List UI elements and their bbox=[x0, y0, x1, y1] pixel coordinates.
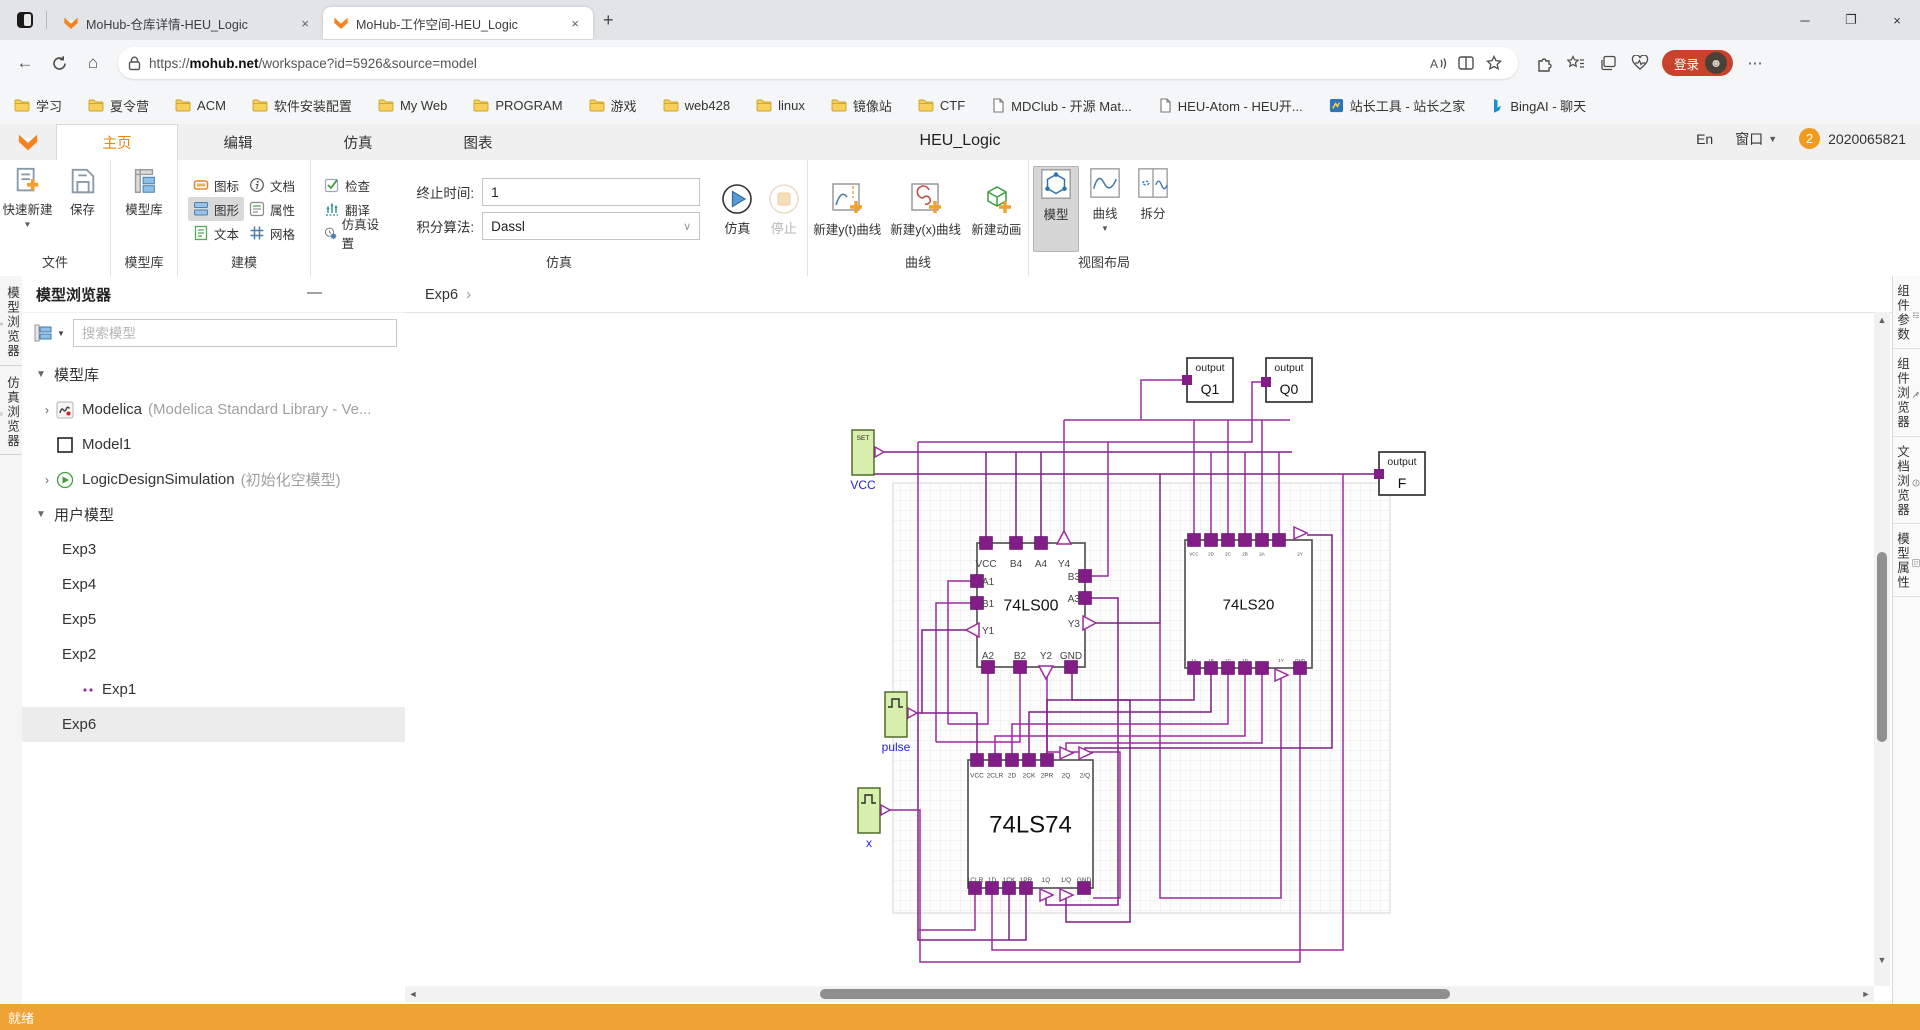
yt-curve-icon bbox=[829, 180, 865, 216]
scroll-left-icon[interactable]: ◄ bbox=[405, 989, 421, 999]
bookmark-item[interactable]: MDClub - 开源 Mat... bbox=[991, 96, 1132, 115]
home-icon[interactable]: ⌂ bbox=[76, 46, 110, 80]
toggle-attributes[interactable]: 属性 bbox=[244, 197, 300, 221]
bookmark-item[interactable]: 站长工具 - 站长之家 bbox=[1329, 96, 1466, 115]
tree-item-模型库[interactable]: ▼模型库 bbox=[22, 357, 405, 392]
svg-text:1PR: 1PR bbox=[1020, 877, 1033, 884]
tree-item-modelica[interactable]: ›Modelica(Modelica Standard Library - Ve… bbox=[22, 392, 405, 427]
status-text: 就绪 bbox=[8, 1008, 34, 1027]
yx-curve-icon bbox=[908, 180, 944, 216]
folder-icon bbox=[252, 98, 268, 112]
dock-tab-label: 文档浏览器 bbox=[1893, 445, 1912, 518]
ribbon-tab-edit[interactable]: 编辑 bbox=[178, 124, 298, 160]
tab-title: MoHub-仓库详情-HEU_Logic bbox=[86, 14, 297, 33]
right-dock-tab-2[interactable]: 组件浏览器 bbox=[1893, 349, 1920, 437]
model-view-icon bbox=[1039, 167, 1073, 201]
save-icon bbox=[68, 166, 98, 196]
svg-text:VCC: VCC bbox=[850, 478, 876, 492]
svg-text:B2: B2 bbox=[1014, 651, 1027, 662]
bookmark-label: 站长工具 - 站长之家 bbox=[1350, 96, 1466, 115]
ribbon-group-simulation: 检查 翻译 仿真设置 终止时间: 1 积分算法: bbox=[311, 160, 808, 276]
svg-text:F: F bbox=[1398, 475, 1407, 491]
back-icon[interactable]: ← bbox=[8, 46, 42, 80]
left-dock-tab-2[interactable]: 仿真浏览器 bbox=[0, 366, 22, 456]
svg-text:VCC: VCC bbox=[975, 559, 996, 570]
grid-icon bbox=[249, 225, 265, 241]
tab-title: MoHub-工作空间-HEU_Logic bbox=[356, 14, 567, 33]
svg-text:74LS74: 74LS74 bbox=[989, 811, 1072, 838]
folder-icon bbox=[175, 98, 191, 112]
svg-text:A1: A1 bbox=[982, 577, 995, 588]
document-title: HEU_Logic bbox=[920, 132, 1001, 150]
tree-item-exp2[interactable]: Exp2 bbox=[22, 637, 405, 672]
check-button[interactable]: 检查 bbox=[319, 173, 386, 197]
bookmark-label: 游戏 bbox=[611, 96, 637, 115]
svg-text:2B: 2B bbox=[1242, 552, 1248, 557]
ribbon: 快速新建 ▼ 保存 文件 模型库 模型库 图标 bbox=[0, 160, 1920, 277]
svg-text:x: x bbox=[866, 836, 872, 850]
svg-text:Q0: Q0 bbox=[1280, 381, 1299, 397]
mohub-favicon bbox=[63, 15, 79, 31]
integrator-label: 积分算法: bbox=[396, 216, 474, 236]
site-icon bbox=[1329, 98, 1344, 113]
chevron-down-icon: ∨ bbox=[683, 220, 691, 233]
circuit-svg: VCCB4A4Y4A1B1Y1B3A3Y3A2B2Y2GND74LS00VCC2… bbox=[405, 312, 1874, 986]
login-button[interactable]: 登录 ☻ bbox=[1662, 50, 1733, 76]
more-menu-icon[interactable]: ⋯ bbox=[1739, 47, 1771, 79]
source-block-x[interactable]: x bbox=[858, 788, 890, 850]
bookmark-item[interactable]: PROGRAM bbox=[473, 98, 562, 113]
svg-text:1C: 1C bbox=[1225, 658, 1232, 663]
group-label-curves: 曲线 bbox=[808, 252, 1028, 276]
output-block-q0[interactable]: outputQ0 bbox=[1261, 358, 1312, 402]
model-browser-panel: 模型浏览器 — ▼ ▼模型库›Modelica(Modelica Standar… bbox=[22, 276, 406, 1004]
bookmark-label: HEU-Atom - HEU开... bbox=[1178, 96, 1303, 115]
save-button[interactable]: 保存 bbox=[57, 166, 108, 252]
view-split-button[interactable]: 拆分 bbox=[1131, 166, 1175, 252]
group-label-view: 视图布局 bbox=[1029, 252, 1179, 276]
svg-text:GND: GND bbox=[1077, 877, 1092, 884]
wire[interactable] bbox=[1141, 380, 1187, 420]
toggle-grid[interactable]: 网格 bbox=[244, 221, 300, 245]
stop-time-input[interactable]: 1 bbox=[482, 178, 700, 206]
chevron-down-icon: ▼ bbox=[57, 329, 65, 338]
folder-icon bbox=[831, 98, 847, 112]
group-label-modeling: 建模 bbox=[178, 252, 310, 276]
svg-text:Q1: Q1 bbox=[1201, 381, 1220, 397]
left-dock-strip: 模型浏览器仿真浏览器 bbox=[0, 276, 23, 1004]
svg-text:74LS20: 74LS20 bbox=[1223, 596, 1275, 613]
svg-text:A: A bbox=[1430, 57, 1438, 71]
ribbon-group-view: 模型 曲线 ▼ 拆分 视图布局 bbox=[1029, 160, 1179, 276]
folder-icon bbox=[473, 98, 489, 112]
new-document-icon bbox=[13, 166, 43, 196]
svg-text:1B: 1B bbox=[1208, 658, 1214, 663]
breadcrumb-chevron: › bbox=[466, 286, 471, 303]
extensions-icon[interactable] bbox=[1528, 47, 1560, 79]
animation-cube-icon bbox=[978, 180, 1014, 216]
dock-tab-label: 模型浏览器 bbox=[3, 286, 22, 359]
tree-item-exp5[interactable]: Exp5 bbox=[22, 602, 405, 637]
bookmark-label: BingAI - 聊天 bbox=[1510, 96, 1586, 115]
svg-text:B1: B1 bbox=[982, 599, 995, 610]
model-tree: ▼模型库›Modelica(Modelica Standard Library … bbox=[22, 357, 405, 742]
ribbon-group-library: 模型库 模型库 bbox=[111, 160, 178, 276]
browser-essentials-icon[interactable] bbox=[1624, 47, 1656, 79]
svg-text:Y3: Y3 bbox=[1068, 619, 1081, 630]
simulation-icon bbox=[56, 471, 74, 489]
tree-label: Exp6 bbox=[62, 716, 96, 733]
quick-new-button[interactable]: 快速新建 ▼ bbox=[2, 166, 53, 252]
right-dock-tab-3[interactable]: 文档浏览器 bbox=[1893, 437, 1920, 525]
caret-down-icon[interactable]: ▼ bbox=[34, 509, 48, 520]
tree-label: Exp5 bbox=[62, 611, 96, 628]
url-text[interactable]: https://mohub.net/workspace?id=5926&sour… bbox=[149, 56, 1424, 71]
panel-title: 模型浏览器 bbox=[36, 284, 111, 305]
view-model-button[interactable]: 模型 bbox=[1033, 166, 1079, 252]
model-library-button[interactable]: 模型库 bbox=[113, 166, 175, 252]
tree-item-exp6[interactable]: Exp6 bbox=[22, 707, 405, 742]
svg-text:output: output bbox=[1387, 456, 1416, 468]
horizontal-scroll-thumb[interactable] bbox=[820, 989, 1450, 999]
svg-text:1D: 1D bbox=[1242, 658, 1249, 663]
breadcrumb-bar: Exp6› bbox=[405, 276, 1893, 313]
svg-text:A2: A2 bbox=[982, 651, 995, 662]
view-curve-button[interactable]: 曲线 ▼ bbox=[1083, 166, 1127, 252]
search-input[interactable] bbox=[73, 319, 397, 347]
stop-button: 停止 bbox=[761, 166, 807, 252]
account-id[interactable]: 2020065821 bbox=[1828, 131, 1906, 147]
split-screen-icon[interactable] bbox=[1452, 56, 1480, 70]
group-label-simulation: 仿真 bbox=[311, 252, 807, 276]
tree-label: 用户模型 bbox=[54, 504, 114, 525]
group-label-file: 文件 bbox=[0, 252, 110, 276]
toggle-icon-view[interactable]: 图标 bbox=[188, 173, 244, 197]
simulation-settings-button[interactable]: 仿真设置 bbox=[319, 221, 386, 245]
panel-minimize-button[interactable]: — bbox=[307, 284, 322, 301]
bookmark-label: 夏令营 bbox=[110, 96, 149, 115]
chip-74ls00[interactable]: VCCB4A4Y4A1B1Y1B3A3Y3A2B2Y2GND74LS00 bbox=[966, 531, 1096, 679]
svg-text:2Y: 2Y bbox=[1297, 552, 1303, 557]
bookmark-label: 学习 bbox=[36, 96, 62, 115]
split-view-icon bbox=[1136, 166, 1170, 200]
mohub-favicon bbox=[333, 15, 349, 31]
tree-label: Exp3 bbox=[62, 541, 96, 558]
chip-74ls74[interactable]: VCC2CLR2D2CK2PR2Q2/Q1CLR1D1CK1PR1Q1/QGND… bbox=[967, 747, 1093, 901]
svg-text:2C: 2C bbox=[1225, 552, 1232, 557]
horizontal-scrollbar[interactable]: ◄ ► bbox=[405, 986, 1874, 1002]
svg-text:2CK: 2CK bbox=[1023, 773, 1036, 780]
bookmark-label: 镜像站 bbox=[853, 96, 892, 115]
tree-label: 模型库 bbox=[54, 364, 99, 385]
favorite-add-icon[interactable] bbox=[1480, 55, 1508, 71]
language-toggle[interactable]: En bbox=[1696, 131, 1713, 147]
translate-icon bbox=[324, 201, 340, 217]
text-view-icon bbox=[193, 225, 209, 241]
scroll-down-icon[interactable]: ▼ bbox=[1874, 952, 1890, 968]
chevron-down-icon: ▼ bbox=[24, 220, 32, 229]
source-block-vcc[interactable]: SETVCC bbox=[850, 430, 884, 492]
breadcrumb[interactable]: Exp6› bbox=[425, 286, 471, 303]
left-dock-tab-1[interactable]: 模型浏览器 bbox=[0, 276, 22, 366]
browser-toolbar: ← ⌂ https://mohub.net/workspace?id=5926&… bbox=[0, 40, 1920, 86]
tree-label: Exp4 bbox=[62, 576, 96, 593]
tree-label: Exp2 bbox=[62, 646, 96, 663]
model-icon bbox=[56, 436, 74, 454]
toggle-text-view[interactable]: 文本 bbox=[188, 221, 244, 245]
chip-74ls20[interactable]: VCC2D2C2B2A2Y1A1B1C1D1YGND74LS20 bbox=[1185, 527, 1312, 681]
integrator-select[interactable]: Dassl∨ bbox=[482, 212, 700, 240]
avatar: ☻ bbox=[1705, 52, 1727, 74]
bookmark-item[interactable]: BingAI - 聊天 bbox=[1491, 96, 1586, 115]
svg-text:1Y: 1Y bbox=[1278, 658, 1284, 663]
svg-text:Y4: Y4 bbox=[1058, 559, 1071, 570]
caret-right-icon[interactable]: › bbox=[40, 403, 54, 417]
tree-item-exp1[interactable]: Exp1 bbox=[22, 672, 405, 707]
page-icon bbox=[991, 98, 1005, 113]
play-icon bbox=[720, 182, 754, 216]
output-block-f[interactable]: outputF bbox=[1374, 452, 1425, 495]
svg-text:2PR: 2PR bbox=[1041, 773, 1054, 780]
caret-down-icon[interactable]: ▼ bbox=[34, 369, 48, 380]
read-aloud-icon[interactable]: A bbox=[1424, 56, 1452, 71]
svg-text:1Q: 1Q bbox=[1042, 877, 1051, 884]
icon-view-icon bbox=[193, 177, 209, 193]
window-minimize-button[interactable]: ─ bbox=[1782, 0, 1828, 40]
right-dock-strip: 组件参数组件浏览器文档浏览器模型属性 bbox=[1892, 276, 1920, 1004]
folder-icon bbox=[378, 98, 394, 112]
svg-text:1/Q: 1/Q bbox=[1061, 877, 1071, 884]
tree-label: Modelica bbox=[82, 401, 142, 418]
diagram-draw-area[interactable]: VCCB4A4Y4A1B1Y1B3A3Y3A2B2Y2GND74LS00VCC2… bbox=[405, 312, 1874, 986]
toggle-diagram-view[interactable]: 图形 bbox=[188, 197, 244, 221]
bookmark-item[interactable]: 夏令营 bbox=[88, 96, 149, 115]
tree-note: (初始化空模型) bbox=[241, 469, 341, 490]
address-bar[interactable]: https://mohub.net/workspace?id=5926&sour… bbox=[118, 47, 1518, 79]
bookmark-label: My Web bbox=[400, 98, 447, 113]
bookmark-label: MDClub - 开源 Mat... bbox=[1011, 96, 1132, 115]
svg-text:GND: GND bbox=[1295, 658, 1306, 663]
browser-tab-1[interactable]: MoHub-仓库详情-HEU_Logic × bbox=[53, 7, 323, 39]
svg-text:74LS00: 74LS00 bbox=[1003, 598, 1058, 615]
ribbon-tab-simulate[interactable]: 仿真 bbox=[298, 124, 418, 160]
svg-text:output: output bbox=[1274, 362, 1303, 374]
exp-child-icon bbox=[82, 686, 94, 694]
check-icon bbox=[324, 177, 340, 193]
bookmark-item[interactable]: 游戏 bbox=[589, 96, 637, 115]
browser-tab-2[interactable]: MoHub-工作空间-HEU_Logic × bbox=[323, 7, 593, 39]
svg-text:Y1: Y1 bbox=[982, 626, 995, 637]
chevron-down-icon: ▼ bbox=[1768, 134, 1777, 144]
ribbon-tab-chart[interactable]: 图表 bbox=[418, 124, 538, 160]
tree-label: LogicDesignSimulation bbox=[82, 471, 235, 488]
output-block-q1[interactable]: outputQ1 bbox=[1182, 358, 1233, 402]
right-dock-tab-1[interactable]: 组件参数 bbox=[1893, 276, 1920, 349]
svg-text:GND: GND bbox=[1060, 651, 1082, 662]
tree-item-exp3[interactable]: Exp3 bbox=[22, 532, 405, 567]
bookmark-item[interactable]: My Web bbox=[378, 98, 447, 113]
tree-item-exp4[interactable]: Exp4 bbox=[22, 567, 405, 602]
mohub-logo bbox=[0, 124, 56, 160]
tab-separator bbox=[46, 11, 47, 29]
login-label: 登录 bbox=[1674, 54, 1699, 73]
bookmark-item[interactable]: web428 bbox=[663, 98, 731, 113]
dock-tab-label: 仿真浏览器 bbox=[3, 376, 22, 449]
svg-text:Y2: Y2 bbox=[1040, 651, 1053, 662]
dock-tab-label: 组件浏览器 bbox=[1893, 357, 1912, 430]
bookmark-item[interactable]: linux bbox=[756, 98, 805, 113]
bookmark-label: web428 bbox=[685, 98, 731, 113]
workspace: 模型浏览器仿真浏览器 模型浏览器 — ▼ ▼模型库›Modelica(Model… bbox=[0, 276, 1920, 1004]
toggle-document[interactable]: 文档 bbox=[244, 173, 300, 197]
notification-badge[interactable]: 2 bbox=[1799, 128, 1820, 149]
bookmark-label: linux bbox=[778, 98, 805, 113]
bing-icon bbox=[1491, 98, 1504, 113]
browser-tab-bar: MoHub-仓库详情-HEU_Logic × MoHub-工作空间-HEU_Lo… bbox=[0, 0, 1920, 40]
folder-icon bbox=[589, 98, 605, 112]
bookmark-label: CTF bbox=[940, 98, 965, 113]
folder-icon bbox=[918, 98, 934, 112]
diagram-view-icon bbox=[193, 201, 209, 217]
svg-text:output: output bbox=[1195, 362, 1224, 374]
tree-item-logicdesignsimulation[interactable]: ›LogicDesignSimulation(初始化空模型) bbox=[22, 462, 405, 497]
tree-label: Model1 bbox=[82, 436, 131, 453]
new-tab-button[interactable]: + bbox=[603, 10, 614, 31]
refresh-icon[interactable] bbox=[42, 46, 76, 80]
tab-close-icon[interactable]: × bbox=[567, 16, 583, 31]
status-bar: 就绪 bbox=[0, 1004, 1920, 1030]
svg-text:2CLR: 2CLR bbox=[987, 773, 1004, 780]
folder-icon bbox=[14, 98, 30, 112]
modelica-icon bbox=[56, 401, 74, 419]
stop-icon bbox=[767, 182, 801, 216]
tab-close-icon[interactable]: × bbox=[297, 16, 313, 31]
svg-text:B3: B3 bbox=[1068, 572, 1081, 583]
group-label-library: 模型库 bbox=[111, 252, 177, 276]
bookmark-item[interactable]: 镜像站 bbox=[831, 96, 892, 115]
ribbon-group-curves: 新建y(t)曲线 新建y(x)曲线 新建动画 曲线 bbox=[808, 160, 1029, 276]
bookmark-label: 软件安装配置 bbox=[274, 96, 352, 115]
svg-text:VCC: VCC bbox=[1189, 552, 1199, 557]
curve-view-icon bbox=[1088, 166, 1122, 200]
attributes-icon bbox=[249, 201, 265, 217]
folder-icon bbox=[756, 98, 772, 112]
bookmarks-bar: 学习夏令营ACM软件安装配置My WebPROGRAM游戏web428linux… bbox=[0, 86, 1920, 125]
bookmark-item[interactable]: 学习 bbox=[14, 96, 62, 115]
stop-time-label: 终止时间: bbox=[396, 182, 474, 202]
bookmark-item[interactable]: ACM bbox=[175, 98, 226, 113]
svg-text:SET: SET bbox=[857, 435, 870, 442]
page-icon bbox=[1158, 98, 1172, 113]
svg-text:1A: 1A bbox=[1191, 658, 1197, 663]
chevron-down-icon: ▼ bbox=[1101, 224, 1109, 233]
svg-text:A4: A4 bbox=[1035, 559, 1048, 570]
bookmark-item[interactable]: HEU-Atom - HEU开... bbox=[1158, 96, 1303, 115]
favorites-icon[interactable] bbox=[1560, 47, 1592, 79]
window-close-button[interactable]: × bbox=[1874, 0, 1920, 40]
ribbon-group-modeling: 图标 图形 文本 文档 属性 bbox=[178, 160, 311, 276]
new-yt-curve-button[interactable]: 新建y(t)曲线 bbox=[808, 166, 886, 252]
account-area: En 窗口 ▼ 2 2020065821 bbox=[1696, 128, 1906, 149]
tree-filter-button[interactable]: ▼ bbox=[32, 323, 65, 343]
filter-layers-icon bbox=[32, 323, 54, 343]
bookmark-item[interactable]: CTF bbox=[918, 98, 965, 113]
bookmark-label: ACM bbox=[197, 98, 226, 113]
svg-text:A3: A3 bbox=[1068, 594, 1081, 605]
lock-icon bbox=[128, 56, 141, 71]
info-icon bbox=[249, 177, 265, 193]
svg-text:pulse: pulse bbox=[882, 740, 911, 754]
svg-text:2D: 2D bbox=[1008, 773, 1017, 780]
tree-label: Exp1 bbox=[102, 681, 136, 698]
ribbon-group-file: 快速新建 ▼ 保存 文件 bbox=[0, 160, 111, 276]
tree-note: (Modelica Standard Library - Ve... bbox=[148, 401, 371, 418]
bookmark-label: PROGRAM bbox=[495, 98, 562, 113]
folder-icon bbox=[88, 98, 104, 112]
tab-actions-icon[interactable] bbox=[10, 7, 40, 33]
svg-text:2A: 2A bbox=[1259, 552, 1265, 557]
scroll-right-icon[interactable]: ► bbox=[1858, 989, 1874, 999]
dock-tab-label: 模型属性 bbox=[1893, 532, 1912, 590]
vertical-scrollbar[interactable]: ▲ ▼ bbox=[1874, 312, 1890, 986]
folder-icon bbox=[663, 98, 679, 112]
svg-text:2D: 2D bbox=[1208, 552, 1215, 557]
new-animation-button[interactable]: 新建动画 bbox=[965, 166, 1028, 252]
window-menu[interactable]: 窗口 bbox=[1735, 129, 1763, 149]
window-maximize-button[interactable]: ❐ bbox=[1828, 0, 1874, 40]
tree-item-用户模型[interactable]: ▼用户模型 bbox=[22, 497, 405, 532]
svg-text:1D: 1D bbox=[988, 877, 997, 884]
vertical-scroll-thumb[interactable] bbox=[1877, 552, 1887, 742]
dock-tab-label: 组件参数 bbox=[1893, 284, 1912, 342]
svg-text:VCC: VCC bbox=[970, 773, 984, 780]
caret-right-icon[interactable]: › bbox=[40, 473, 54, 487]
scroll-up-icon[interactable]: ▲ bbox=[1874, 312, 1890, 328]
bookmark-item[interactable]: 软件安装配置 bbox=[252, 96, 352, 115]
right-dock-tab-4[interactable]: 模型属性 bbox=[1893, 524, 1920, 597]
svg-text:2/Q: 2/Q bbox=[1080, 773, 1090, 780]
new-yx-curve-button[interactable]: 新建y(x)曲线 bbox=[886, 166, 964, 252]
tree-item-model1[interactable]: Model1 bbox=[22, 427, 405, 462]
svg-text:1CK: 1CK bbox=[1003, 877, 1016, 884]
simulate-button[interactable]: 仿真 bbox=[714, 166, 760, 252]
diagram-canvas: Exp6› VCCB4A4Y4A1B1Y1B3A3Y3A2B2Y2GND74LS… bbox=[405, 276, 1893, 1004]
svg-text:2Q: 2Q bbox=[1062, 773, 1071, 780]
library-icon bbox=[129, 166, 159, 196]
collections-icon[interactable] bbox=[1592, 47, 1624, 79]
svg-text:1CLR: 1CLR bbox=[967, 877, 984, 884]
ribbon-tab-home[interactable]: 主页 bbox=[56, 124, 178, 160]
settings-clock-icon bbox=[324, 225, 337, 241]
svg-text:B4: B4 bbox=[1010, 559, 1023, 570]
